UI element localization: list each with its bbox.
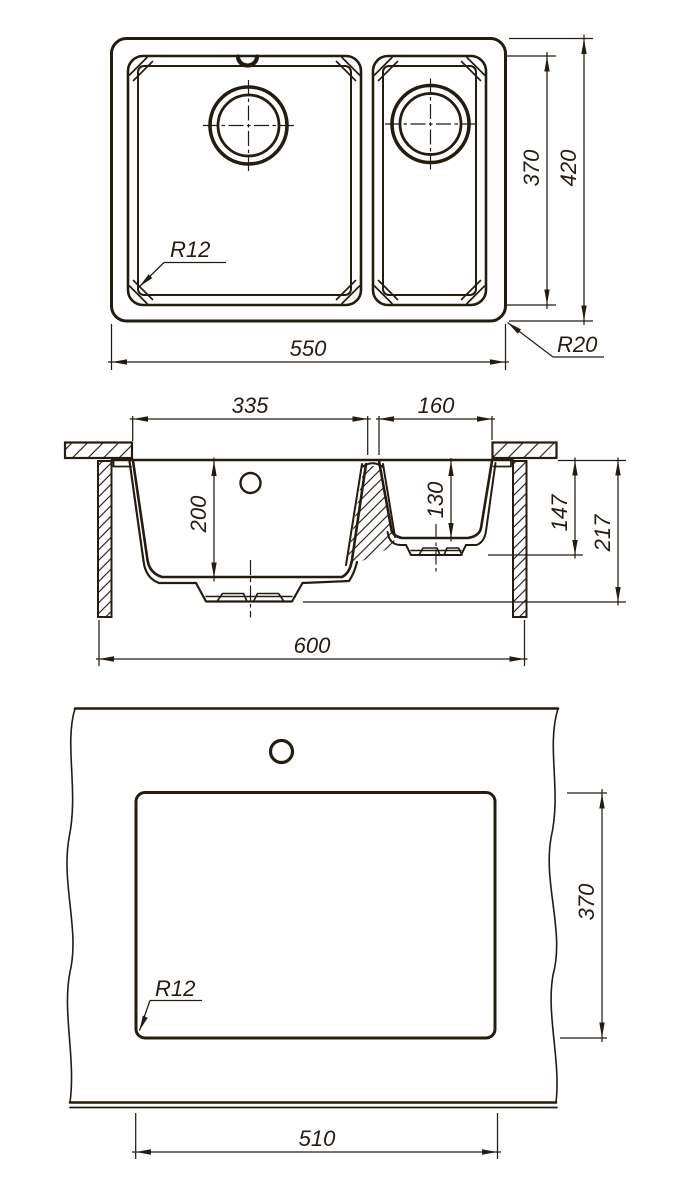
overflow-hole	[241, 473, 261, 493]
worktop-right	[493, 443, 557, 459]
main-bowl-inner-profile	[133, 461, 366, 577]
label-r12-cutout: R12	[137, 976, 202, 1032]
cabinet-wall-left	[98, 461, 112, 617]
dim-147-text: 147	[547, 494, 572, 531]
dim-550-text: 550	[290, 336, 327, 361]
small-bowl-outer-right	[466, 463, 496, 545]
dim-217-text: 217	[590, 514, 615, 552]
worktop-break-right	[549, 709, 558, 1103]
technical-drawing-sheet: 550 370 420 R12	[0, 0, 678, 1200]
dim-130: 130	[423, 458, 454, 542]
label-r12-plan: R12	[138, 237, 226, 288]
dim-600: 600	[96, 620, 528, 666]
cabinet-wall-right	[513, 461, 527, 617]
dim-200: 200	[186, 458, 217, 582]
label-r12-cutout-text: R12	[155, 976, 195, 1001]
plan-view: 550 370 420 R12	[108, 35, 604, 371]
dim-200-text: 200	[186, 495, 211, 533]
dim-550: 550	[108, 324, 509, 370]
label-r20: R20	[506, 320, 604, 357]
dim-510: 510	[132, 1113, 501, 1159]
dim-370-cutout: 370	[560, 789, 607, 1042]
section-view: 335 160 200 130	[65, 393, 626, 666]
tap-hole-notch	[238, 57, 257, 66]
dim-335: 335	[130, 393, 371, 455]
sink-outer-edge	[112, 39, 506, 322]
main-drain-recess	[196, 583, 303, 602]
dim-370-plan: 370	[507, 52, 556, 309]
worktop-left	[65, 443, 132, 459]
dim-420-text: 420	[556, 149, 581, 186]
dim-370-plan-text: 370	[519, 149, 544, 186]
dim-370-cutout-text: 370	[574, 883, 599, 920]
sink-drawing: 550 370 420 R12	[0, 0, 678, 1200]
dim-600-text: 600	[294, 633, 331, 658]
worktop-break-left	[67, 709, 75, 1103]
label-r20-text: R20	[557, 332, 598, 357]
cutout-opening	[136, 793, 495, 1039]
dim-160-text: 160	[418, 393, 455, 418]
dim-335-text: 335	[232, 393, 269, 418]
main-bowl-rim-outer	[128, 56, 361, 305]
dim-130-text: 130	[423, 481, 448, 518]
cutout-view: 370 510 R12	[67, 709, 607, 1160]
label-r12-plan-text: R12	[170, 237, 210, 262]
faucet-hole	[271, 741, 293, 763]
dim-160: 160	[376, 393, 495, 455]
dim-510-text: 510	[299, 1126, 336, 1151]
drain-centerlines	[203, 79, 476, 172]
